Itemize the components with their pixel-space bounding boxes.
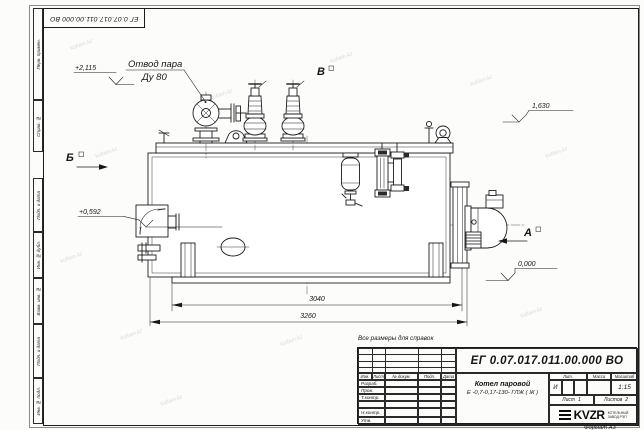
tb-empty-cell <box>418 401 441 408</box>
tb-product-name-cell: Котел паровой Е -0,7-0,17-130- ГЛЖ ( Ж ) <box>456 373 549 425</box>
tb-empty-cell <box>441 380 456 387</box>
tb-empty-cell <box>574 380 587 395</box>
tb-role-tkontr: Т.контр. <box>358 394 385 401</box>
view-b-arrow <box>77 164 108 170</box>
vent-valve-right <box>425 121 433 143</box>
tb-lit-value: И <box>549 380 562 395</box>
product-type: Е -0,7-0,17-130- ГЛЖ ( Ж ) <box>467 390 538 396</box>
format-label: Формат А3 <box>584 425 616 430</box>
tb-empty-cell <box>441 408 456 417</box>
elevation-mark-top <box>74 73 134 85</box>
view-marker-v: В <box>317 66 325 78</box>
tb-header-izm: Изм. <box>358 373 372 380</box>
tb-scale-label: Масштаб <box>611 373 638 380</box>
dimension-3040: 3040 <box>309 296 325 303</box>
kvzr-logo-caption: КОТЕЛЬНЫЙ ЗАВОД РЭП <box>608 411 629 419</box>
tb-role-utv: Утв. <box>358 417 385 426</box>
steam-outlet-label-line2: Ду 80 <box>141 72 167 83</box>
tb-empty-cell <box>358 401 385 408</box>
vent-valve-left <box>159 130 169 143</box>
tb-mass-label: Масса <box>587 373 611 380</box>
view-b-index-box <box>79 152 84 157</box>
dimension-3260: 3260 <box>300 313 316 320</box>
tb-scale-value: 1:15 <box>611 380 638 395</box>
safety-valve-2 <box>281 80 305 150</box>
tb-logo-cell: KVZR КОТЕЛЬНЫЙ ЗАВОД РЭП <box>549 405 638 425</box>
tb-role-prov: Пров. <box>358 387 385 394</box>
tb-role-razrab: Разраб. <box>358 380 385 387</box>
view-marker-b: Б <box>66 152 74 164</box>
tb-empty-cell <box>418 380 441 387</box>
kvzr-logo-text: KVZR <box>574 408 605 422</box>
tb-lit-label: Лит. <box>549 373 587 380</box>
steam-outlet-label-line1: Отвод пара <box>128 59 182 70</box>
tb-empty-cell <box>385 401 418 408</box>
reference-dimensions-note: Все размеры для справок <box>358 335 433 342</box>
tb-empty-cell <box>385 394 418 401</box>
tb-header-list: Лист <box>372 373 385 380</box>
safety-valve-1 <box>243 80 267 150</box>
elevation-1630-value: 1,630 <box>532 103 550 110</box>
tb-empty-cell <box>562 380 575 395</box>
kvzr-logo-icon <box>559 410 571 421</box>
tb-mass-value <box>587 380 611 395</box>
elevation-mark-zero <box>486 269 557 281</box>
tb-empty-cell <box>418 387 441 394</box>
elevation-top-value: +2,115 <box>75 65 96 72</box>
title-block: Изм. Лист № докум. Подп. Дата Разраб. Пр… <box>357 347 637 424</box>
tb-sheet-cell: Лист1 <box>549 395 594 405</box>
tb-empty-cell <box>418 417 441 426</box>
product-name: Котел паровой <box>475 379 531 388</box>
tb-role-nkontr: Н.контр. <box>358 408 385 417</box>
tb-header-podp: Подп. <box>418 373 441 380</box>
tb-empty-cell <box>385 417 418 426</box>
tb-empty-cell <box>441 417 456 426</box>
tb-header-doc: № докум. <box>385 373 418 380</box>
tb-doc-number: ЕГ 0.07.017.011.00.000 ВО <box>456 348 638 373</box>
tb-sheets-cell: Листов2 <box>594 395 638 405</box>
tb-empty-cell <box>441 387 456 394</box>
view-a-index-box <box>536 227 541 232</box>
tb-empty-cell <box>385 380 418 387</box>
tb-empty-cell <box>441 401 456 408</box>
tb-empty-cell <box>385 387 418 394</box>
drawing-sheet: kotlam.kz kotlam.kz kotlam.kz kotlam.kz … <box>0 0 644 430</box>
tb-empty-cell <box>418 408 441 417</box>
tb-empty-cell <box>418 394 441 401</box>
elevation-mark-1630 <box>503 111 573 123</box>
elevation-burner-value: +0,592 <box>79 209 101 216</box>
elevation-zero-value: 0,000 <box>518 261 536 268</box>
view-marker-a: А <box>523 227 532 239</box>
tb-header-data: Дата <box>441 373 456 380</box>
view-v-index-box <box>329 66 334 71</box>
tb-empty-cell <box>385 408 418 417</box>
top-casing-plate <box>156 143 453 153</box>
lifting-lug-right <box>435 126 451 143</box>
tb-empty-cell <box>441 394 456 401</box>
